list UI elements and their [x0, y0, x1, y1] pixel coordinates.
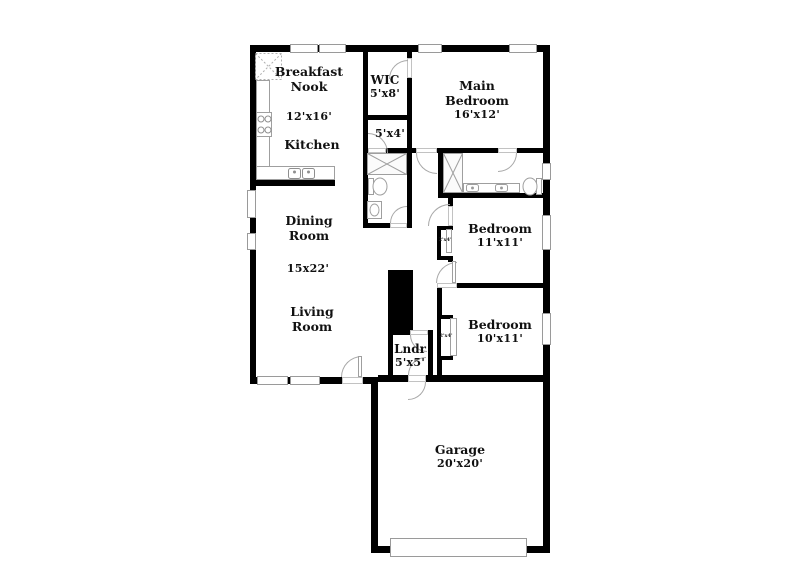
toilet — [523, 178, 542, 195]
living-room-name: Room — [290, 319, 333, 334]
hall-closet-dim: 5'x4' — [375, 127, 405, 140]
great-room-dim: 15x22' — [287, 262, 329, 275]
laundry-name: Lndr — [394, 342, 426, 356]
living-room-name: Living — [290, 304, 333, 319]
label-closet-2x4: 2'x4' — [438, 237, 451, 243]
closet-2x4-dim: 2'x4' — [439, 333, 452, 339]
dining-room-name: Room — [285, 228, 332, 243]
bedroom-10-dim: 10'x11' — [468, 332, 532, 345]
kitchen-name: Kitchen — [284, 137, 339, 152]
label-closet-2x4: 2'x4' — [439, 333, 452, 339]
breakfast-nook-name: Nook — [275, 79, 343, 94]
bedroom-11-dim: 11'x11' — [468, 236, 532, 249]
toilet — [369, 178, 388, 195]
laundry-dim: 5'x5' — [394, 356, 426, 369]
main-bedroom-name: Main — [445, 78, 509, 93]
label-great-room-dim: 15x22' — [287, 262, 329, 275]
bedroom-10-name: Bedroom — [468, 317, 532, 332]
label-laundry: Lndr 5'x5' — [394, 342, 426, 370]
label-bedroom-10: Bedroom 10'x11' — [468, 317, 532, 345]
label-hall-closet: 5'x4' — [375, 127, 405, 140]
breakfast-nook-dim: 12'x16' — [286, 110, 332, 123]
label-breakfast-nook: Breakfast Nook — [275, 64, 343, 94]
floor-plan: Breakfast Nook 12'x16' Kitchen WIC 5'x8'… — [0, 0, 800, 582]
stove — [257, 113, 272, 137]
garage-dim: 20'x20' — [435, 457, 485, 470]
double-vanity — [464, 184, 520, 193]
wic-dim: 5'x8' — [370, 87, 400, 100]
shower — [444, 154, 463, 193]
label-garage: Garage 20'x20' — [435, 442, 485, 470]
dining-room-name: Dining — [285, 213, 332, 228]
label-breakfast-nook-dim: 12'x16' — [286, 110, 332, 123]
garage-name: Garage — [435, 442, 485, 457]
closet-2x4-dim: 2'x4' — [438, 237, 451, 243]
breakfast-nook-name: Breakfast — [275, 64, 343, 79]
label-kitchen: Kitchen — [284, 137, 339, 152]
wic-name: WIC — [370, 73, 400, 87]
main-bedroom-name: Bedroom — [445, 93, 509, 108]
label-wic: WIC 5'x8' — [370, 73, 400, 101]
bathroom-sink — [368, 202, 382, 219]
bedroom-11-name: Bedroom — [468, 221, 532, 236]
bathtub — [368, 154, 407, 175]
label-main-bedroom: Main Bedroom 16'x12' — [445, 78, 509, 121]
label-dining-room: Dining Room — [285, 213, 332, 243]
main-bedroom-dim: 16'x12' — [445, 108, 509, 121]
label-bedroom-11: Bedroom 11'x11' — [468, 221, 532, 249]
label-living-room: Living Room — [290, 304, 333, 334]
